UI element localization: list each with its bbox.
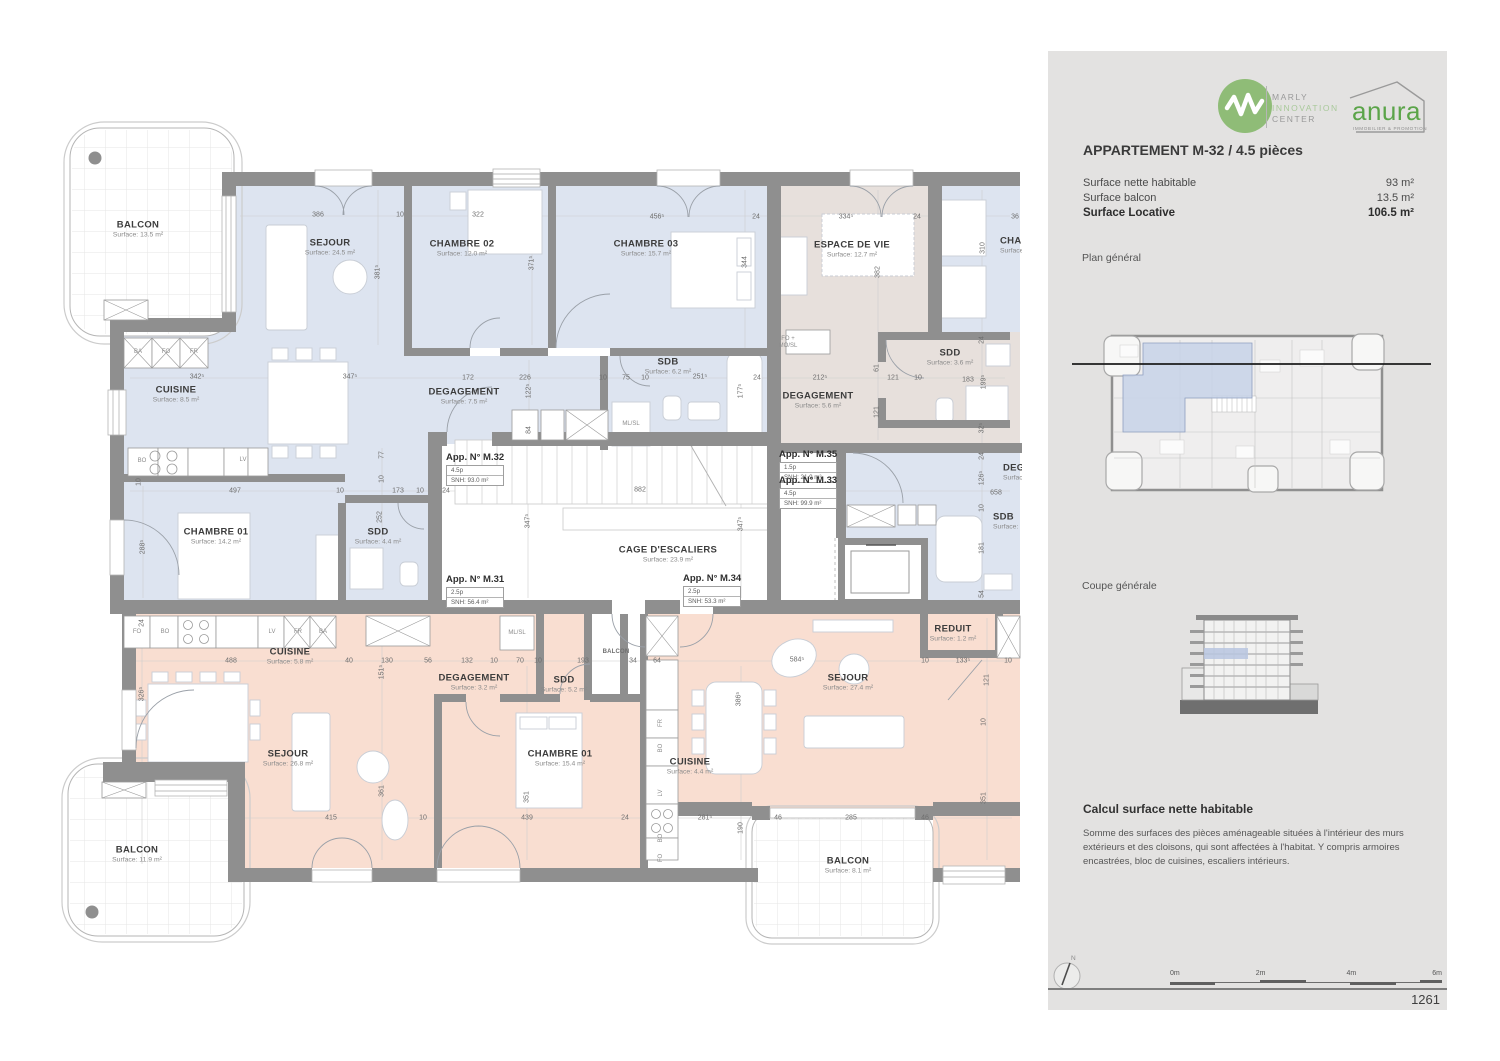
- surface-row-label: Surface nette habitable: [1083, 176, 1196, 191]
- anura-logo: anura: [1352, 96, 1421, 127]
- anura-tagline: IMMOBILIER & PROMOTION: [1353, 126, 1427, 131]
- surface-row-value: 93 m²: [1386, 176, 1414, 191]
- marly-line3: CENTER: [1272, 114, 1339, 125]
- plan-drawing: [0, 0, 1022, 1061]
- scale-bar-segment: [1260, 980, 1306, 983]
- coupe-generale-thumbnail: [1062, 560, 1442, 730]
- surface-row-label: Surface balcon: [1083, 191, 1156, 206]
- calc-title: Calcul surface nette habitable: [1083, 802, 1253, 816]
- scale-bar: 0m2m4m6m: [1170, 970, 1442, 988]
- surface-row: Surface nette habitable93 m²: [1083, 176, 1414, 191]
- scale-bar-segment: [1170, 982, 1215, 985]
- panel-separator: [1048, 988, 1447, 990]
- surface-summary: Surface nette habitable93 m²Surface balc…: [1083, 176, 1414, 221]
- page: BALCONSurface: 13.5 m²SEJOURSurface: 24.…: [0, 0, 1500, 1061]
- surface-row: Surface Locative106.5 m²: [1083, 206, 1414, 221]
- surface-row-value: 13.5 m²: [1377, 191, 1414, 206]
- marly-logo: [1210, 71, 1280, 141]
- scale-tick-label: 0m: [1170, 970, 1180, 977]
- scale-bar-segment: [1420, 980, 1442, 983]
- scale-tick-label: 2m: [1256, 970, 1266, 977]
- calc-body: Somme des surfaces des pièces aménageabl…: [1083, 827, 1417, 869]
- plan-general-thumbnail: [1062, 328, 1442, 512]
- surface-row-label: Surface Locative: [1083, 206, 1175, 221]
- north-label: N: [1071, 955, 1076, 962]
- surface-row: Surface balcon13.5 m²: [1083, 191, 1414, 206]
- scale-bar-segment: [1350, 982, 1396, 985]
- page-number: 1261: [1048, 992, 1440, 1007]
- marly-line2: INNOVATION: [1272, 103, 1339, 114]
- surface-row-value: 106.5 m²: [1368, 206, 1414, 221]
- plan-general-label: Plan général: [1082, 252, 1141, 264]
- floor-plan: BALCONSurface: 13.5 m²SEJOURSurface: 24.…: [0, 0, 1022, 1061]
- logo-divider: [1266, 86, 1267, 128]
- apartment-title: APPARTEMENT M-32 / 4.5 pièces: [1083, 142, 1303, 158]
- marly-line1: MARLY: [1272, 92, 1339, 103]
- scale-tick-label: 4m: [1346, 970, 1356, 977]
- scale-tick-label: 6m: [1432, 970, 1442, 977]
- marly-logo-text: MARLY INNOVATION CENTER: [1272, 92, 1339, 125]
